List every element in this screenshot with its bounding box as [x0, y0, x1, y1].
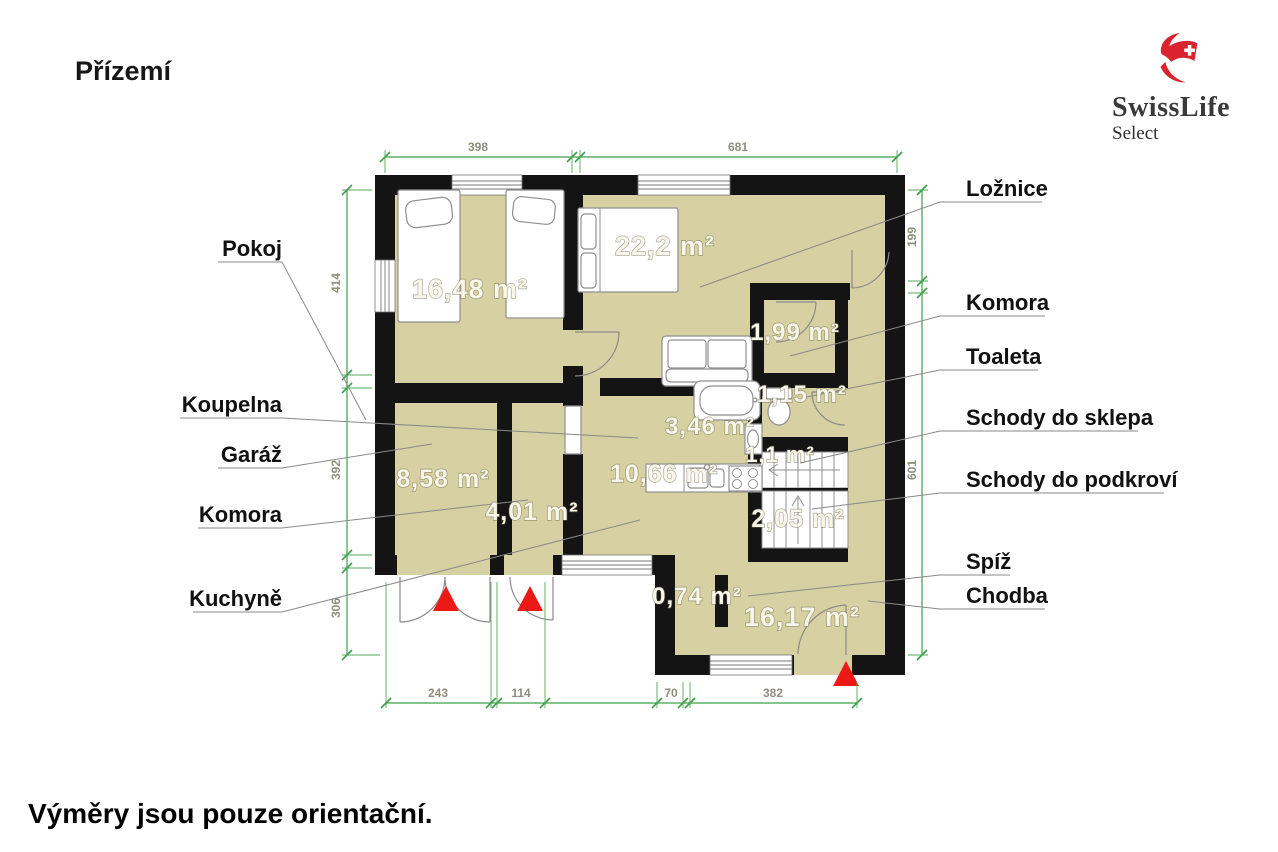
floor-plan: 398 681 414 392 306 199 601 243 114 70 3…	[0, 0, 1278, 852]
label-schody-podkrovi: Schody do podkroví	[966, 467, 1178, 492]
entrance-marker-side	[517, 586, 543, 611]
area-toaleta: 1,15 m²	[757, 381, 847, 408]
door-garage-left	[400, 577, 445, 622]
area-komora-horni: 1,99 m²	[750, 319, 840, 346]
label-chodba: Chodba	[966, 583, 1049, 608]
label-koupelna: Koupelna	[182, 392, 283, 417]
window-hallway	[710, 655, 792, 675]
sofa	[662, 336, 752, 386]
label-schody-sklep: Schody do sklepa	[966, 405, 1154, 430]
area-koupelna: 3,46 m²	[665, 413, 755, 440]
footer-note: Výměry jsou pouze orientační.	[28, 798, 433, 830]
label-komora-horni: Komora	[966, 290, 1050, 315]
label-loznice: Ložnice	[966, 176, 1048, 201]
label-garaz: Garáž	[221, 442, 282, 467]
window-top-2	[638, 175, 730, 195]
dim-left-414: 414	[329, 273, 343, 293]
label-pokoj: Pokoj	[222, 236, 282, 261]
dim-bottom-382: 382	[763, 686, 783, 700]
dim-left-392: 392	[329, 460, 343, 480]
door-leaf-corridor	[565, 406, 581, 454]
area-chodba: 16,17 m²	[744, 602, 860, 632]
dim-bottom-243: 243	[428, 686, 448, 700]
dim-left-306: 306	[329, 598, 343, 618]
dim-right-199: 199	[905, 227, 919, 247]
area-pokoj: 16,48 m²	[412, 274, 528, 304]
dim-top-398: 398	[468, 140, 488, 154]
window-left	[375, 260, 395, 312]
dimension-top: 398 681	[380, 140, 902, 173]
area-schody-podkrovi: 2,05 m²	[751, 505, 844, 533]
dim-bottom-114: 114	[511, 686, 531, 700]
label-spiz: Spíž	[966, 549, 1011, 574]
opening-side-door	[504, 555, 553, 575]
dim-bottom-70: 70	[664, 686, 678, 700]
page: Přízemí SwissLife Select	[0, 0, 1278, 852]
window-bottom-left	[562, 555, 652, 575]
dimension-right: 199 601	[905, 185, 928, 660]
entrance-marker-garage	[433, 586, 459, 611]
dim-right-601: 601	[905, 460, 919, 480]
label-kuchyne: Kuchyně	[189, 586, 282, 611]
dim-top-681: 681	[728, 140, 748, 154]
opening-garage-door	[397, 555, 490, 575]
label-komora-dolni: Komora	[199, 502, 283, 527]
area-spiz: 0,74 m²	[652, 583, 742, 610]
area-kuchyne: 10,66 m²	[610, 460, 718, 488]
area-garaz: 8,58 m²	[396, 465, 489, 493]
label-toaleta: Toaleta	[966, 344, 1042, 369]
area-komora-dolni: 4,01 m²	[485, 498, 578, 526]
area-loznice: 22,2 m²	[615, 231, 715, 261]
area-schody-sklep: 1,1 m²	[745, 442, 815, 467]
